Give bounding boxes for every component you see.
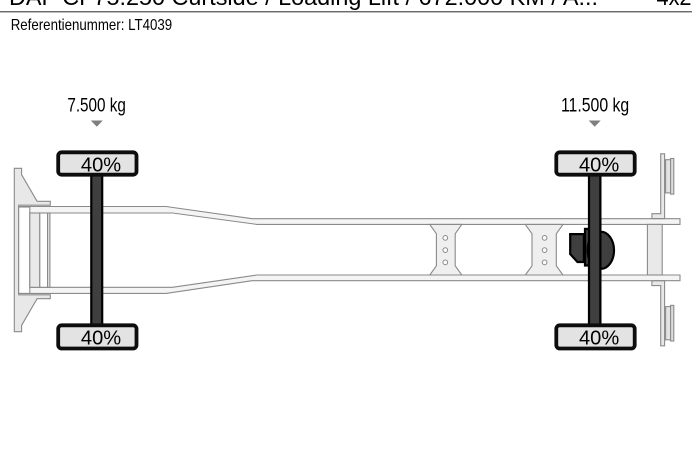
svg-text:40%: 40%	[81, 327, 121, 349]
svg-text:Referentienummer: LT4039: Referentienummer: LT4039	[11, 17, 173, 34]
svg-text:7.500 kg: 7.500 kg	[67, 95, 126, 117]
svg-text:11.500 kg: 11.500 kg	[561, 95, 629, 117]
svg-text:40%: 40%	[579, 154, 619, 176]
svg-text:4x2: 4x2	[657, 0, 692, 10]
svg-text:DAF CF75.250 Curtside / Loadin: DAF CF75.250 Curtside / Loading Lift / 6…	[9, 0, 598, 10]
svg-text:40%: 40%	[579, 327, 619, 349]
svg-text:40%: 40%	[81, 154, 121, 176]
